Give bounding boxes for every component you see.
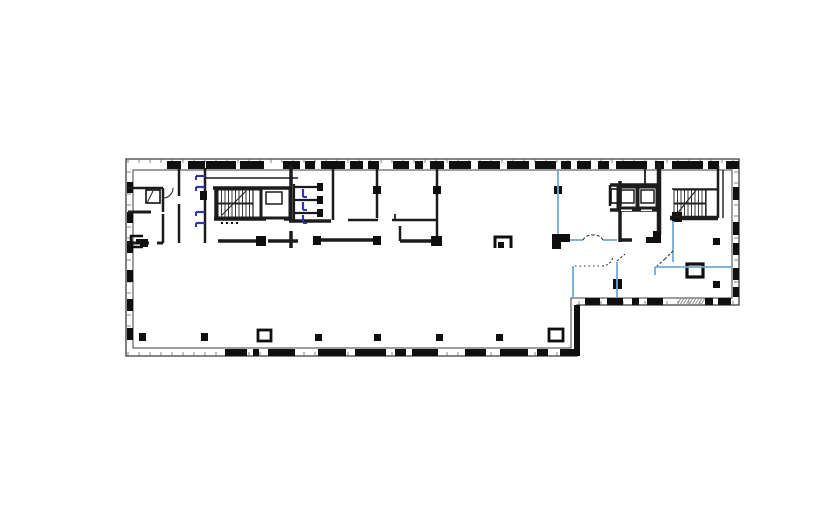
wall-fill <box>713 281 720 288</box>
floor-plan-page <box>0 0 821 528</box>
wall-fill <box>496 334 503 341</box>
wall-pier-top <box>449 161 471 169</box>
step-wall <box>574 305 580 356</box>
stair-dot <box>221 222 223 224</box>
wall-pier-top <box>206 161 236 169</box>
wall-fill <box>317 183 323 191</box>
wall-pier-left <box>127 328 133 340</box>
wall-pier-bottom <box>395 349 406 356</box>
wall-pier-top <box>577 161 591 169</box>
wall-pier-top <box>321 161 345 169</box>
column-wide-2 <box>549 329 563 341</box>
wall-fill <box>201 333 208 341</box>
wall-fill <box>315 334 322 341</box>
wall-fill <box>373 186 381 194</box>
wall-pier-bottom <box>465 349 486 356</box>
wall-pier-top <box>478 161 500 169</box>
wall-fill <box>256 236 266 246</box>
shaft-box <box>687 264 703 277</box>
wall-pier-left <box>127 270 133 282</box>
wall-pier-top <box>535 161 556 169</box>
wall-pier-top <box>616 161 647 169</box>
wall-pier-right <box>733 243 739 255</box>
wall-pier-top <box>350 161 363 169</box>
wall-pier-bottom-right <box>607 298 623 305</box>
wall-pier-bottom-right <box>705 298 713 305</box>
wall-fill <box>317 196 323 204</box>
wall-fill <box>200 191 207 200</box>
wall-fill <box>713 238 720 245</box>
wall-pier-bottom-right <box>632 298 639 305</box>
wall-pier-right <box>733 268 739 280</box>
wall-fill <box>433 186 441 194</box>
wall-fill <box>436 334 443 341</box>
wall-pier-top <box>393 161 409 169</box>
wall-pier-top <box>368 161 379 169</box>
wall-fill <box>373 236 381 245</box>
wall-fill <box>646 237 654 243</box>
wall-fill <box>431 236 442 246</box>
wall-pier-bottom <box>253 349 259 356</box>
wall-pier-top <box>240 161 264 169</box>
wall-pier-top <box>726 161 739 169</box>
wall-pier-bottom <box>318 349 346 356</box>
wall-fill <box>653 231 661 243</box>
wall-pier-right <box>733 222 739 235</box>
bracket-fill <box>498 242 504 248</box>
wall-pier-bottom <box>500 349 528 356</box>
wall-pier-right <box>733 187 739 200</box>
wall-fill <box>552 242 561 249</box>
floor-plan-canvas <box>0 0 821 528</box>
wall-pier-top <box>561 161 571 169</box>
wall-pier-bottom <box>355 349 386 356</box>
wall-pier-top <box>167 161 181 169</box>
wall-pier-bottom-right <box>585 298 600 305</box>
wall-fill <box>139 333 146 341</box>
wall-pier-bottom <box>225 349 247 356</box>
wall-pier-right <box>733 287 739 297</box>
wall-fill <box>317 209 323 217</box>
wall-pier-top <box>507 161 529 169</box>
column-wide-1 <box>258 330 271 341</box>
wall-fill <box>552 234 570 242</box>
wall-fill <box>374 334 381 341</box>
wall-pier-top <box>598 161 609 169</box>
wall-pier-left <box>127 299 133 311</box>
bracket-fill <box>136 239 142 244</box>
wall-pier-left <box>127 212 133 223</box>
wall-pier-bottom <box>268 349 295 356</box>
wall-pier-bottom <box>412 349 438 356</box>
wall-pier-top <box>672 161 703 169</box>
wall-fill <box>313 236 321 245</box>
stair-dot <box>231 222 233 224</box>
stair-dot <box>236 222 238 224</box>
wall-pier-bottom-right <box>718 298 731 305</box>
stair-dot <box>226 222 228 224</box>
wall-pier-top <box>305 161 315 169</box>
wall-pier-top <box>430 161 444 169</box>
wall-pier-top <box>415 161 423 169</box>
wall-pier-bottom-right <box>647 298 663 305</box>
wall-pier-bottom <box>537 349 548 356</box>
wall-pier-top <box>188 161 205 169</box>
